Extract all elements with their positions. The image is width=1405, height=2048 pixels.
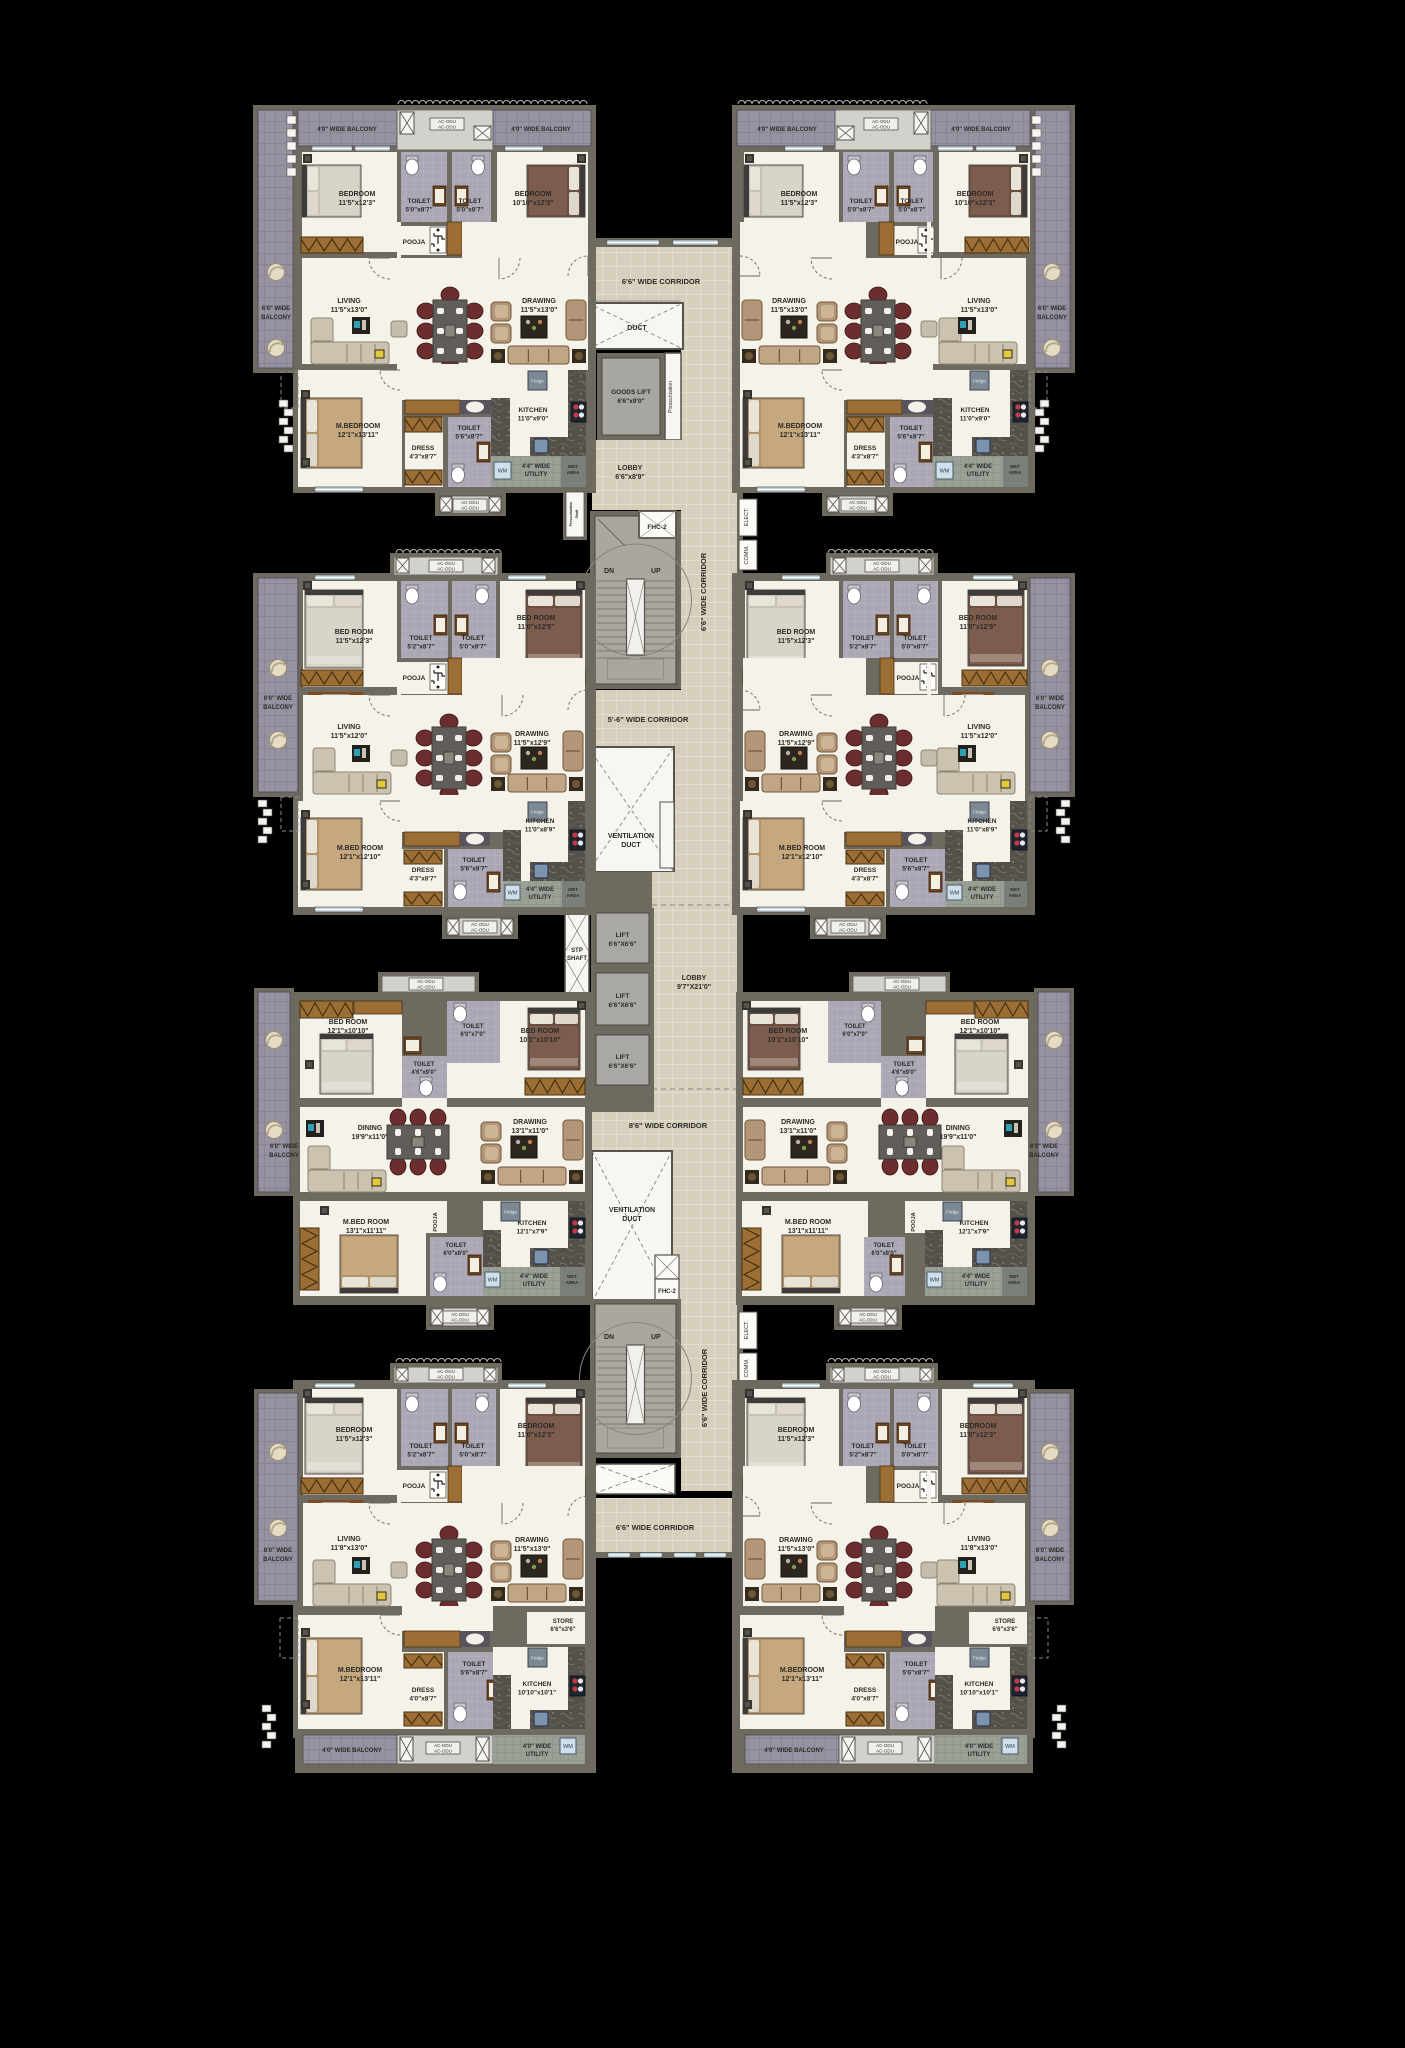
svg-text:DRESS: DRESS [412, 445, 435, 452]
svg-text:DRAWING: DRAWING [781, 1119, 815, 1126]
svg-text:Fridge: Fridge [531, 1656, 544, 1661]
svg-text:BED ROOM: BED ROOM [517, 615, 556, 622]
svg-text:KITCHEN: KITCHEN [960, 1220, 989, 1227]
svg-text:11'5"x13'0": 11'5"x13'0" [331, 307, 368, 314]
svg-text:6'0" WIDE: 6'0" WIDE [1036, 696, 1064, 702]
svg-text:Fridge: Fridge [504, 1210, 517, 1215]
svg-text:11'5"x12'3": 11'5"x12'3" [781, 200, 818, 207]
svg-text:LIFT: LIFT [616, 1054, 630, 1061]
svg-text:DUCT: DUCT [627, 325, 647, 332]
svg-text:12'1"x13'11": 12'1"x13'11" [782, 1676, 823, 1683]
svg-text:11'0"x9'0": 11'0"x9'0" [518, 416, 549, 423]
svg-text:6'0" WIDE: 6'0" WIDE [1038, 306, 1066, 312]
svg-text:8'6" WIDE CORRIDOR: 8'6" WIDE CORRIDOR [629, 1121, 708, 1130]
svg-text:AC-ODU: AC-ODU [471, 922, 489, 927]
svg-text:9'7"X21'0": 9'7"X21'0" [677, 984, 711, 991]
svg-text:DN: DN [604, 1334, 614, 1341]
svg-text:DRAWING: DRAWING [779, 731, 813, 738]
svg-text:BEDROOM: BEDROOM [957, 191, 994, 198]
svg-text:WM: WM [563, 1744, 573, 1750]
svg-text:TOILET: TOILET [462, 1443, 485, 1450]
svg-text:11'5"x13'0": 11'5"x13'0" [521, 307, 558, 314]
svg-text:TOILET: TOILET [463, 857, 486, 864]
svg-text:DN: DN [604, 568, 614, 575]
svg-text:10'10"x10'1": 10'10"x10'1" [960, 1690, 998, 1697]
svg-text:Fridge: Fridge [973, 1656, 986, 1661]
svg-text:11'5"x12'3": 11'5"x12'3" [336, 1436, 373, 1443]
svg-text:WET: WET [1009, 1274, 1019, 1279]
svg-text:WM: WM [930, 1278, 940, 1284]
svg-text:4'3"x8'7": 4'3"x8'7" [409, 876, 436, 883]
svg-text:UTILITY: UTILITY [971, 895, 994, 901]
svg-text:12'1"x12'10": 12'1"x12'10" [781, 854, 822, 861]
svg-text:AC-ODU: AC-ODU [437, 567, 455, 572]
svg-text:BALCONY: BALCONY [261, 315, 291, 321]
svg-text:13'1"x11'11": 13'1"x11'11" [346, 1228, 386, 1235]
svg-text:BEDROOM: BEDROOM [515, 191, 552, 198]
svg-text:UTILITY: UTILITY [529, 895, 552, 901]
svg-text:TOILET: TOILET [904, 1443, 927, 1450]
svg-text:Fridge: Fridge [531, 379, 544, 384]
svg-text:6'6" WIDE CORRIDOR: 6'6" WIDE CORRIDOR [699, 552, 708, 631]
svg-text:AC-ODU: AC-ODU [873, 1369, 891, 1374]
svg-text:KITCHEN: KITCHEN [518, 1220, 547, 1227]
svg-text:4'4" WIDE: 4'4" WIDE [968, 887, 996, 893]
svg-text:4'4" WIDE: 4'4" WIDE [526, 887, 554, 893]
svg-text:4'0" WIDE BALCONY: 4'0" WIDE BALCONY [951, 127, 1011, 133]
svg-text:POOJA: POOJA [897, 675, 920, 682]
svg-text:UTILITY: UTILITY [965, 1282, 988, 1288]
svg-text:AC-ODU: AC-ODU [873, 1375, 891, 1380]
svg-text:5'6"x8'7": 5'6"x8'7" [455, 434, 482, 441]
svg-text:STP: STP [571, 948, 583, 954]
svg-text:AREA: AREA [1008, 1280, 1022, 1285]
svg-text:M.BED ROOM: M.BED ROOM [337, 845, 383, 852]
svg-text:TOILET: TOILET [458, 425, 481, 432]
svg-text:DRAWING: DRAWING [513, 1119, 547, 1126]
svg-text:11'8"x13'0": 11'8"x13'0" [961, 1545, 998, 1552]
svg-text:4'0" WIDE: 4'0" WIDE [965, 1744, 993, 1750]
svg-text:4'4" WIDE: 4'4" WIDE [520, 1274, 548, 1280]
svg-text:5'0"x8'7": 5'0"x8'7" [459, 1452, 486, 1459]
svg-text:POOJA: POOJA [897, 1483, 920, 1490]
svg-text:5'0"x8'7": 5'0"x8'7" [901, 644, 928, 651]
svg-text:BEDROOM: BEDROOM [960, 1423, 997, 1430]
svg-text:BED ROOM: BED ROOM [329, 1019, 368, 1026]
svg-text:FHC-2: FHC-2 [658, 1289, 676, 1295]
svg-text:10'1"x10'10": 10'1"x10'10" [767, 1037, 808, 1044]
svg-text:AC-ODU: AC-ODU [417, 979, 435, 984]
svg-text:4'0"x8'7": 4'0"x8'7" [851, 1696, 878, 1703]
svg-text:6'6"X6'6": 6'6"X6'6" [608, 1002, 636, 1009]
svg-text:4'6"x9'0": 4'6"x9'0" [891, 1070, 916, 1076]
svg-text:BALCONY: BALCONY [1035, 1557, 1065, 1563]
svg-text:TOILET: TOILET [408, 198, 431, 205]
svg-text:KITCHEN: KITCHEN [965, 1681, 994, 1688]
svg-text:12'1"x13'11": 12'1"x13'11" [780, 432, 821, 439]
svg-text:AC-ODU: AC-ODU [839, 922, 857, 927]
svg-text:TOILET: TOILET [850, 198, 873, 205]
svg-text:AC-ODU: AC-ODU [437, 1369, 455, 1374]
svg-text:6'0" WIDE: 6'0" WIDE [264, 696, 292, 702]
svg-text:6'6"x3'6": 6'6"x3'6" [992, 1627, 1017, 1633]
svg-text:12'1"x13'11": 12'1"x13'11" [340, 1676, 381, 1683]
svg-text:KITCHEN: KITCHEN [961, 407, 990, 414]
svg-text:BALCONY: BALCONY [269, 1153, 299, 1159]
svg-text:POOJA: POOJA [403, 675, 426, 682]
svg-text:WM: WM [940, 469, 950, 475]
svg-text:4'3"x8'7": 4'3"x8'7" [409, 454, 436, 461]
svg-text:AC-ODU: AC-ODU [873, 567, 891, 572]
svg-text:WM: WM [488, 1278, 498, 1284]
svg-text:5'6"x8'7": 5'6"x8'7" [460, 866, 487, 873]
svg-text:5'0"x8'7": 5'0"x8'7" [405, 207, 432, 214]
svg-text:4'0" WIDE BALCONY: 4'0" WIDE BALCONY [757, 127, 817, 133]
svg-text:TOILET: TOILET [413, 1062, 435, 1068]
svg-text:11'0"x9'0": 11'0"x9'0" [960, 416, 991, 423]
svg-text:Fridge: Fridge [531, 810, 544, 815]
svg-text:11'5"x12'3": 11'5"x12'3" [778, 638, 815, 645]
svg-text:UTILITY: UTILITY [523, 1282, 546, 1288]
svg-text:TOILET: TOILET [852, 1443, 875, 1450]
svg-text:TOILET: TOILET [905, 1661, 928, 1668]
svg-text:KITCHEN: KITCHEN [968, 818, 997, 825]
svg-text:4'0"x8'7": 4'0"x8'7" [409, 1696, 436, 1703]
svg-text:6'6" WIDE CORRIDOR: 6'6" WIDE CORRIDOR [622, 277, 701, 286]
svg-text:DUCT: DUCT [621, 842, 641, 849]
svg-text:TOILET: TOILET [905, 857, 928, 864]
svg-text:6'0" WIDE: 6'0" WIDE [262, 306, 290, 312]
svg-text:AC-ODU: AC-ODU [471, 928, 489, 933]
svg-text:6'6"X6'6": 6'6"X6'6" [608, 941, 636, 948]
svg-text:AC-ODU: AC-ODU [893, 979, 911, 984]
svg-text:M.BED ROOM: M.BED ROOM [779, 845, 825, 852]
svg-text:5'-6" WIDE CORRIDOR: 5'-6" WIDE CORRIDOR [608, 715, 689, 724]
svg-text:BALCONY: BALCONY [263, 1557, 293, 1563]
svg-text:Pressurization: Pressurization [569, 502, 573, 527]
svg-text:AC-ODU: AC-ODU [859, 1318, 877, 1323]
svg-text:M.BEDROOM: M.BEDROOM [336, 423, 381, 430]
svg-text:12'1"x10'10": 12'1"x10'10" [327, 1028, 368, 1035]
svg-text:AC-ODU: AC-ODU [461, 506, 479, 511]
svg-text:ELECT.: ELECT. [744, 1320, 750, 1339]
svg-text:AC-ODU: AC-ODU [876, 1749, 894, 1754]
svg-text:BEDROOM: BEDROOM [781, 191, 818, 198]
svg-text:BED ROOM: BED ROOM [961, 1019, 1000, 1026]
svg-text:AC-ODU: AC-ODU [893, 985, 911, 990]
svg-text:11'5"x12'3": 11'5"x12'3" [778, 1436, 815, 1443]
svg-text:SHAFT: SHAFT [567, 956, 587, 962]
svg-text:M.BED ROOM: M.BED ROOM [785, 1219, 831, 1226]
svg-text:UTILITY: UTILITY [526, 1752, 549, 1758]
svg-text:LIFT: LIFT [616, 993, 630, 1000]
svg-text:5'6"x8'7": 5'6"x8'7" [902, 1670, 929, 1677]
svg-text:POOJA: POOJA [403, 1483, 426, 1490]
svg-text:6'6" WIDE CORRIDOR: 6'6" WIDE CORRIDOR [700, 1348, 709, 1427]
svg-text:AC-ODU: AC-ODU [876, 1743, 894, 1748]
svg-text:DINING: DINING [946, 1125, 971, 1132]
svg-text:12'1"x7'9": 12'1"x7'9" [517, 1229, 548, 1236]
svg-text:4'4" WIDE: 4'4" WIDE [964, 464, 992, 470]
svg-text:LOBBY: LOBBY [682, 975, 707, 982]
svg-text:TOILET: TOILET [873, 1243, 895, 1249]
svg-text:5'0"x8'7": 5'0"x8'7" [847, 207, 874, 214]
svg-text:Fridge: Fridge [973, 379, 986, 384]
svg-text:6'6"X6'6": 6'6"X6'6" [608, 1063, 636, 1070]
svg-text:13'1"x11'0": 13'1"x11'0" [512, 1128, 549, 1135]
svg-text:AREA: AREA [566, 1280, 580, 1285]
svg-text:AREA: AREA [1009, 893, 1023, 898]
svg-text:BED ROOM: BED ROOM [521, 1028, 560, 1035]
svg-text:5'2"x8'7": 5'2"x8'7" [849, 1452, 876, 1459]
svg-text:19'9"x11'0": 19'9"x11'0" [940, 1134, 977, 1141]
svg-text:AC-ODU: AC-ODU [849, 500, 867, 505]
svg-text:AC-ODU: AC-ODU [461, 500, 479, 505]
svg-text:KITCHEN: KITCHEN [523, 1681, 552, 1688]
svg-text:AC-ODU: AC-ODU [417, 985, 435, 990]
svg-text:11'5"x12'9": 11'5"x12'9" [514, 740, 551, 747]
svg-text:FHC-2: FHC-2 [647, 524, 667, 531]
svg-text:5'0"x8'7": 5'0"x8'7" [901, 1452, 928, 1459]
svg-text:LIVING: LIVING [337, 1536, 361, 1543]
svg-text:DINING: DINING [358, 1125, 383, 1132]
svg-text:6'0" WIDE: 6'0" WIDE [264, 1548, 292, 1554]
svg-text:12'1"x10'10": 12'1"x10'10" [959, 1028, 1000, 1035]
svg-text:Shaft: Shaft [575, 509, 579, 519]
svg-text:VENTILATION: VENTILATION [609, 1207, 655, 1214]
svg-text:POOJA: POOJA [896, 239, 919, 246]
svg-text:5'2"x8'7": 5'2"x8'7" [407, 644, 434, 651]
svg-text:4'0" WIDE BALCONY: 4'0" WIDE BALCONY [511, 127, 571, 133]
svg-text:LIVING: LIVING [967, 724, 991, 731]
svg-text:M.BEDROOM: M.BEDROOM [338, 1667, 383, 1674]
svg-text:12'1"x7'9": 12'1"x7'9" [959, 1229, 990, 1236]
svg-text:11'5"x13'0": 11'5"x13'0" [514, 1546, 551, 1553]
svg-text:TOILET: TOILET [445, 1243, 467, 1249]
svg-text:WET: WET [568, 464, 578, 469]
svg-text:TOILET: TOILET [462, 635, 485, 642]
svg-text:TOILET: TOILET [459, 198, 482, 205]
svg-text:DUCT: DUCT [622, 1216, 642, 1223]
svg-text:12'1"x13'11": 12'1"x13'11" [338, 432, 379, 439]
svg-text:TOILET: TOILET [904, 635, 927, 642]
svg-text:DRAWING: DRAWING [515, 731, 549, 738]
svg-text:BED ROOM: BED ROOM [777, 629, 816, 636]
svg-text:BED ROOM: BED ROOM [769, 1028, 808, 1035]
svg-text:POOJA: POOJA [403, 239, 426, 246]
svg-text:4'3"x8'7": 4'3"x8'7" [851, 876, 878, 883]
svg-text:6'6"x9'0": 6'6"x9'0" [617, 398, 644, 405]
svg-text:4'6"x9'0": 4'6"x9'0" [411, 1070, 436, 1076]
svg-text:BALCONY: BALCONY [1035, 705, 1065, 711]
svg-text:WM: WM [1005, 1744, 1015, 1750]
svg-text:VENTILATION: VENTILATION [608, 833, 654, 840]
svg-text:UTILITY: UTILITY [525, 472, 548, 478]
svg-text:6'6"x3'6": 6'6"x3'6" [550, 1627, 575, 1633]
svg-text:4'0" WIDE BALCONY: 4'0" WIDE BALCONY [322, 1748, 382, 1754]
svg-text:ELECT.: ELECT. [744, 507, 750, 526]
svg-text:6'0" WIDE: 6'0" WIDE [1036, 1548, 1064, 1554]
svg-text:KITCHEN: KITCHEN [519, 407, 548, 414]
svg-text:AC-ODU: AC-ODU [872, 119, 890, 124]
svg-text:AC-ODU: AC-ODU [839, 928, 857, 933]
svg-text:6'0" WIDE: 6'0" WIDE [270, 1144, 298, 1150]
svg-text:Fridge: Fridge [946, 1210, 959, 1215]
svg-text:BALCONY: BALCONY [1037, 315, 1067, 321]
svg-text:TOILET: TOILET [852, 635, 875, 642]
svg-text:11'0"x12'3": 11'0"x12'3" [960, 1432, 997, 1439]
svg-text:19'9"x11'0": 19'9"x11'0" [352, 1134, 389, 1141]
svg-text:AC-ODU: AC-ODU [437, 1375, 455, 1380]
svg-text:AC-ODU: AC-ODU [849, 506, 867, 511]
svg-text:11'0"x12'5": 11'0"x12'5" [518, 624, 555, 631]
svg-text:STORE: STORE [553, 1619, 574, 1625]
svg-text:WET: WET [1010, 464, 1020, 469]
svg-text:DRAWING: DRAWING [779, 1537, 813, 1544]
svg-text:AREA: AREA [1009, 470, 1023, 475]
svg-text:10'10"x12'3": 10'10"x12'3" [512, 200, 553, 207]
svg-text:POOJA: POOJA [911, 1212, 917, 1231]
svg-text:11'8"x13'0": 11'8"x13'0" [331, 1545, 368, 1552]
svg-text:BEDROOM: BEDROOM [778, 1427, 815, 1434]
svg-text:4'0" WIDE: 4'0" WIDE [523, 1744, 551, 1750]
svg-text:BALCONY: BALCONY [1029, 1153, 1059, 1159]
svg-text:UTILITY: UTILITY [967, 472, 990, 478]
svg-text:COMM.: COMM. [744, 545, 750, 564]
svg-text:DRAWING: DRAWING [772, 298, 806, 305]
svg-text:AREA: AREA [567, 893, 581, 898]
svg-text:M.BED ROOM: M.BED ROOM [343, 1219, 389, 1226]
svg-text:4'4" WIDE: 4'4" WIDE [962, 1274, 990, 1280]
svg-text:5'6"x8'7": 5'6"x8'7" [902, 866, 929, 873]
svg-text:13'1"x11'0": 13'1"x11'0" [780, 1128, 817, 1135]
svg-text:LOBBY: LOBBY [618, 465, 643, 472]
svg-text:AC-ODU: AC-ODU [438, 125, 456, 130]
svg-text:M.BEDROOM: M.BEDROOM [778, 423, 823, 430]
svg-text:6'6"x8'9": 6'6"x8'9" [615, 474, 644, 481]
svg-text:4'3"x8'7": 4'3"x8'7" [851, 454, 878, 461]
svg-text:GOODS LIFT: GOODS LIFT [611, 389, 651, 396]
svg-text:M.BEDROOM: M.BEDROOM [780, 1667, 825, 1674]
svg-text:BEDROOM: BEDROOM [339, 191, 376, 198]
svg-text:STORE: STORE [995, 1619, 1016, 1625]
svg-text:AC-ODU: AC-ODU [872, 125, 890, 130]
svg-text:10'1"x10'10": 10'1"x10'10" [519, 1037, 560, 1044]
svg-text:TOILET: TOILET [410, 1443, 433, 1450]
svg-text:TOILET: TOILET [463, 1661, 486, 1668]
svg-text:COMM.: COMM. [744, 1358, 750, 1377]
svg-text:AC-ODU: AC-ODU [437, 561, 455, 566]
svg-text:11'5"x12'9": 11'5"x12'9" [778, 740, 815, 747]
svg-text:4'4" WIDE: 4'4" WIDE [522, 464, 550, 470]
svg-text:AREA: AREA [567, 470, 581, 475]
svg-text:11'5"x13'0": 11'5"x13'0" [778, 1546, 815, 1553]
svg-text:5'2"x8'7": 5'2"x8'7" [849, 644, 876, 651]
svg-text:TOILET: TOILET [462, 1024, 484, 1030]
svg-text:12'1"x12'10": 12'1"x12'10" [339, 854, 380, 861]
svg-text:AC-ODU: AC-ODU [451, 1312, 469, 1317]
svg-text:11'5"x12'3": 11'5"x12'3" [336, 638, 373, 645]
svg-text:5'2"x8'7": 5'2"x8'7" [407, 1452, 434, 1459]
svg-text:POOJA: POOJA [433, 1212, 439, 1231]
svg-text:DRAWING: DRAWING [522, 298, 556, 305]
svg-text:WM: WM [498, 469, 508, 475]
svg-text:TOILET: TOILET [900, 425, 923, 432]
svg-text:4'0" WIDE BALCONY: 4'0" WIDE BALCONY [764, 1748, 824, 1754]
svg-text:Pressurization: Pressurization [668, 381, 674, 413]
svg-text:AC-ODU: AC-ODU [859, 1312, 877, 1317]
svg-text:11'5"x12'0": 11'5"x12'0" [331, 733, 368, 740]
svg-text:LIFT: LIFT [616, 932, 630, 939]
svg-text:TOILET: TOILET [410, 635, 433, 642]
svg-text:6'6" WIDE CORRIDOR: 6'6" WIDE CORRIDOR [616, 1523, 695, 1532]
svg-text:DRESS: DRESS [412, 1687, 435, 1694]
svg-text:BED ROOM: BED ROOM [335, 629, 374, 636]
svg-text:TOILET: TOILET [901, 198, 924, 205]
svg-text:5'0"x8'7": 5'0"x8'7" [898, 207, 925, 214]
svg-text:11'5"x12'0": 11'5"x12'0" [961, 733, 998, 740]
svg-text:DRESS: DRESS [854, 445, 877, 452]
svg-text:6'0"x7'0": 6'0"x7'0" [842, 1032, 867, 1038]
svg-text:LIVING: LIVING [337, 724, 361, 731]
svg-text:LIVING: LIVING [967, 298, 991, 305]
svg-text:AC-ODU: AC-ODU [438, 119, 456, 124]
svg-text:AC-ODU: AC-ODU [873, 561, 891, 566]
svg-text:11'5"x12'3": 11'5"x12'3" [339, 200, 376, 207]
svg-text:10'10"x10'1": 10'10"x10'1" [518, 1690, 556, 1697]
svg-text:10'10"x12'3": 10'10"x12'3" [954, 200, 995, 207]
svg-text:5'6"x8'7": 5'6"x8'7" [460, 1670, 487, 1677]
svg-text:WM: WM [508, 891, 518, 897]
svg-text:11'0"x12'5": 11'0"x12'5" [960, 624, 997, 631]
svg-text:WET: WET [567, 1274, 577, 1279]
svg-text:5'0"x8'7": 5'0"x8'7" [459, 644, 486, 651]
svg-text:UP: UP [651, 1334, 661, 1341]
svg-text:TOILET: TOILET [844, 1024, 866, 1030]
svg-text:11'5"x13'0": 11'5"x13'0" [771, 307, 808, 314]
svg-text:4'0" WIDE BALCONY: 4'0" WIDE BALCONY [317, 127, 377, 133]
svg-text:5'0"x8'7": 5'0"x8'7" [456, 207, 483, 214]
svg-text:AC-ODU: AC-ODU [451, 1318, 469, 1323]
svg-text:WET: WET [1010, 887, 1020, 892]
svg-text:LIVING: LIVING [337, 298, 361, 305]
svg-text:11'0"x8'9": 11'0"x8'9" [967, 827, 998, 834]
svg-text:BEDROOM: BEDROOM [518, 1423, 555, 1430]
svg-text:11'0"x12'3": 11'0"x12'3" [518, 1432, 555, 1439]
svg-text:DRAWING: DRAWING [515, 1537, 549, 1544]
svg-text:AC-ODU: AC-ODU [434, 1743, 452, 1748]
svg-text:AC-ODU: AC-ODU [434, 1749, 452, 1754]
svg-text:DRESS: DRESS [854, 867, 877, 874]
svg-text:BEDROOM: BEDROOM [336, 1427, 373, 1434]
svg-text:6'0" WIDE: 6'0" WIDE [1030, 1144, 1058, 1150]
svg-text:TOILET: TOILET [893, 1062, 915, 1068]
svg-text:KITCHEN: KITCHEN [526, 818, 555, 825]
svg-text:6'0"x7'0": 6'0"x7'0" [460, 1032, 485, 1038]
svg-text:WET: WET [568, 887, 578, 892]
svg-text:Fridge: Fridge [973, 810, 986, 815]
svg-text:UP: UP [651, 568, 661, 575]
svg-text:LIVING: LIVING [967, 1536, 991, 1543]
svg-text:5'6"x8'7": 5'6"x8'7" [897, 434, 924, 441]
svg-text:DRESS: DRESS [412, 867, 435, 874]
svg-text:UTILITY: UTILITY [968, 1752, 991, 1758]
svg-text:BALCONY: BALCONY [263, 705, 293, 711]
svg-text:WM: WM [950, 891, 960, 897]
svg-text:13'1"x11'11": 13'1"x11'11" [788, 1228, 828, 1235]
svg-text:BED ROOM: BED ROOM [959, 615, 998, 622]
svg-text:11'5"x13'0": 11'5"x13'0" [961, 307, 998, 314]
